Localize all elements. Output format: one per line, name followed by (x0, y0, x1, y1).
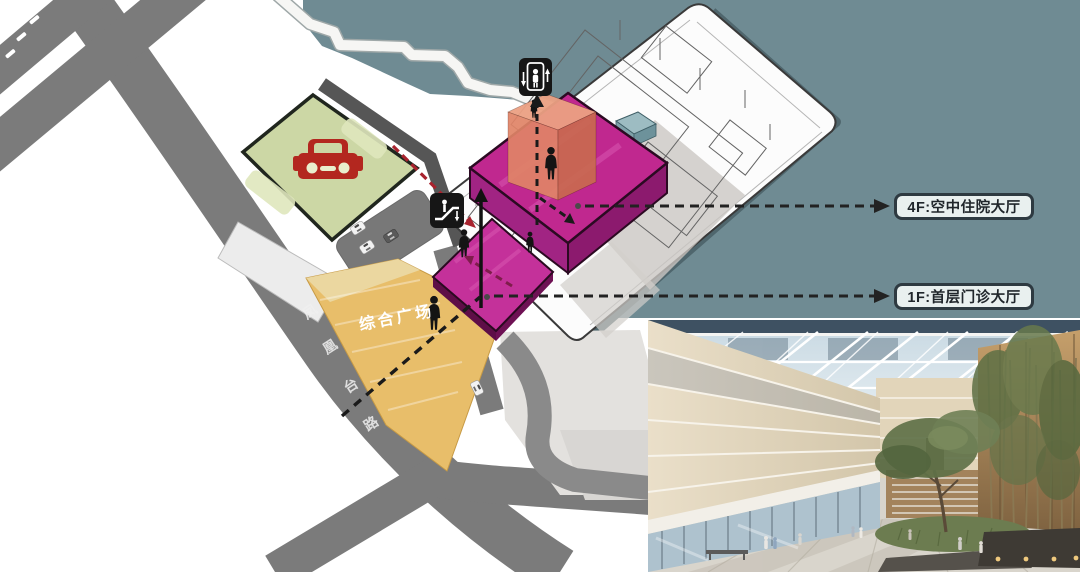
callout-1f-label: 1F:首层门诊大厅 (907, 286, 1020, 307)
escalator-icon (430, 193, 464, 228)
callout-1f: 1F:首层门诊大厅 (894, 283, 1034, 310)
callout-4f-label: 4F:空中住院大厅 (907, 196, 1020, 217)
elevator-icon (519, 58, 552, 96)
atrium-rendering-photo (648, 320, 1080, 572)
elevator-core (508, 94, 596, 200)
callout-4f: 4F:空中住院大厅 (894, 193, 1034, 220)
site-circulation-diagram: 综合广场 凤 凰 台 路 4F:空中住院大厅 1F:首层门诊大厅 (0, 0, 1080, 572)
